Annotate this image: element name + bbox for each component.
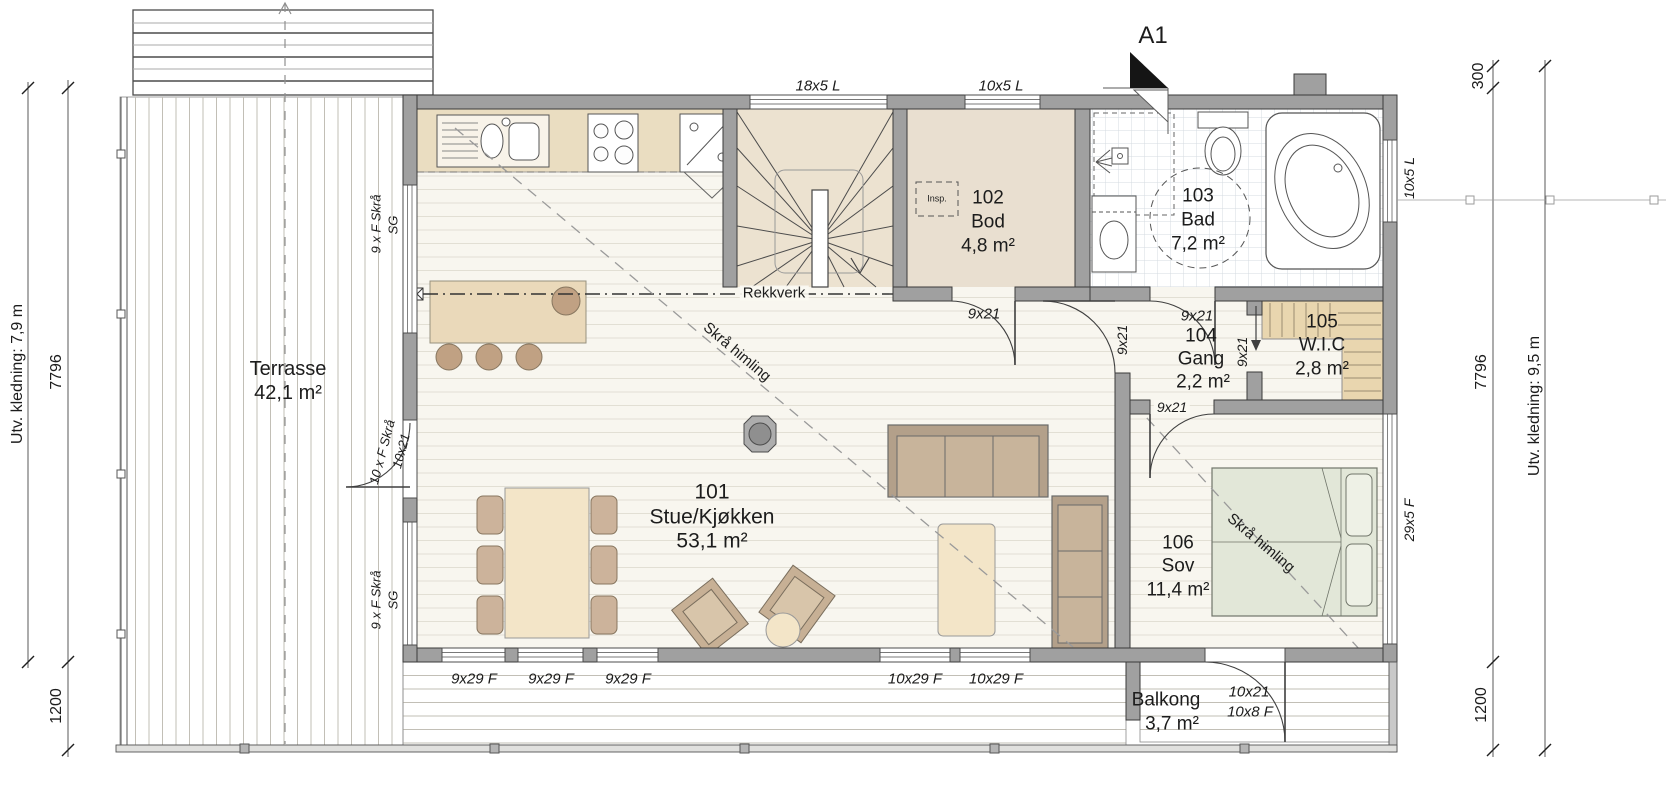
room-104-number: 104 [1185, 327, 1217, 346]
room-103-name: Bad [1181, 211, 1215, 230]
window-label-9x29-1: 9x29 F [451, 672, 497, 687]
room-106-number: 106 [1162, 534, 1194, 553]
window-label-left-fixed-1: 9 x F Skrå [370, 194, 383, 253]
window-label-left-sg-2: SG [387, 591, 400, 610]
room-106-area: 11,4 m² [1146, 581, 1209, 600]
room-103-area: 7,2 m² [1171, 235, 1225, 254]
terrace-name: Terrasse [250, 359, 327, 379]
inspection-label: Insp. [927, 195, 947, 204]
coffee-table [938, 524, 995, 636]
door-label-9x21-bod: 9x21 [968, 307, 1001, 322]
room-103-number: 103 [1182, 187, 1214, 206]
dim-left-offset: 1200 [49, 688, 65, 724]
window-label-29x5: 29x5 F [1402, 499, 1416, 542]
door-label-9x21-hall: 9x21 [1115, 325, 1129, 355]
toilet [1198, 112, 1248, 128]
kitchen-stove [588, 114, 638, 172]
dining-set [477, 488, 617, 638]
room-105-area: 2,8 m² [1295, 360, 1349, 379]
section-marker-label: A1 [1138, 24, 1167, 48]
room-104-name: Gang [1178, 350, 1224, 369]
railing-label: Rekkverk [740, 286, 809, 301]
window-label-9x29-2: 9x29 F [528, 672, 574, 687]
balcony-area: 3,7 m² [1145, 715, 1199, 734]
dim-right-top-offset: 300 [1471, 63, 1487, 90]
door-label-9x21-wic: 9x21 [1235, 337, 1249, 367]
door-label-9x21-bath: 9x21 [1181, 309, 1214, 324]
room-102-number: 102 [972, 189, 1004, 208]
terrace-deck [117, 97, 403, 745]
room-101-area: 53,1 m² [676, 531, 747, 552]
floor-plan-drawing [0, 0, 1670, 800]
room-104-area: 2,2 m² [1176, 373, 1230, 392]
room-105-name: W.I.C [1299, 336, 1345, 355]
floor-plan-page: Terrasse 42,1 m² 101 Stue/Kjøkken 53,1 m… [0, 0, 1670, 800]
room-102-area: 4,8 m² [961, 237, 1015, 256]
bottom-railing [116, 744, 1397, 753]
sofa-vertical [1052, 496, 1108, 652]
room-102-name: Bod [971, 213, 1005, 232]
wood-stove [744, 416, 776, 452]
terrace-area: 42,1 m² [254, 383, 322, 403]
sofa-horizontal [888, 425, 1048, 497]
window-label-18x5: 18x5 L [795, 79, 840, 94]
window-label-left-fixed-2: 9 x F Skrå [370, 570, 383, 629]
door-label-balcony-2: 10x8 F [1227, 705, 1273, 720]
dim-left-height: 7796 [49, 354, 65, 390]
balcony-name: Balkong [1132, 691, 1201, 710]
dim-right-height: 7796 [1474, 354, 1490, 390]
dim-left-cladding: Utv. kledning: 7,9 m [10, 304, 26, 444]
room-105-number: 105 [1306, 313, 1338, 332]
dim-right-offset: 1200 [1474, 687, 1490, 723]
window-label-left-sg-1: SG [387, 216, 400, 235]
room-101-name: Stue/Kjøkken [650, 507, 775, 528]
window-label-10x5-top: 10x5 L [978, 79, 1023, 94]
room-106-name: Sov [1162, 557, 1195, 576]
door-label-balcony-1: 10x21 [1229, 685, 1270, 700]
bed [1212, 468, 1377, 616]
window-label-10x29-2: 10x29 F [969, 672, 1023, 687]
window-label-10x5-right: 10x5 L [1402, 157, 1416, 199]
window-label-10x29-1: 10x29 F [888, 672, 942, 687]
room-101-number: 101 [694, 482, 729, 503]
window-label-9x29-3: 9x29 F [605, 672, 651, 687]
balcony-railing [1389, 662, 1397, 752]
exterior-steps [133, 10, 433, 95]
door-label-9x21-bedroom: 9x21 [1154, 400, 1190, 414]
chimney-stub [1294, 74, 1326, 95]
dim-right-cladding: Utv. kledning: 9,5 m [1527, 336, 1543, 476]
